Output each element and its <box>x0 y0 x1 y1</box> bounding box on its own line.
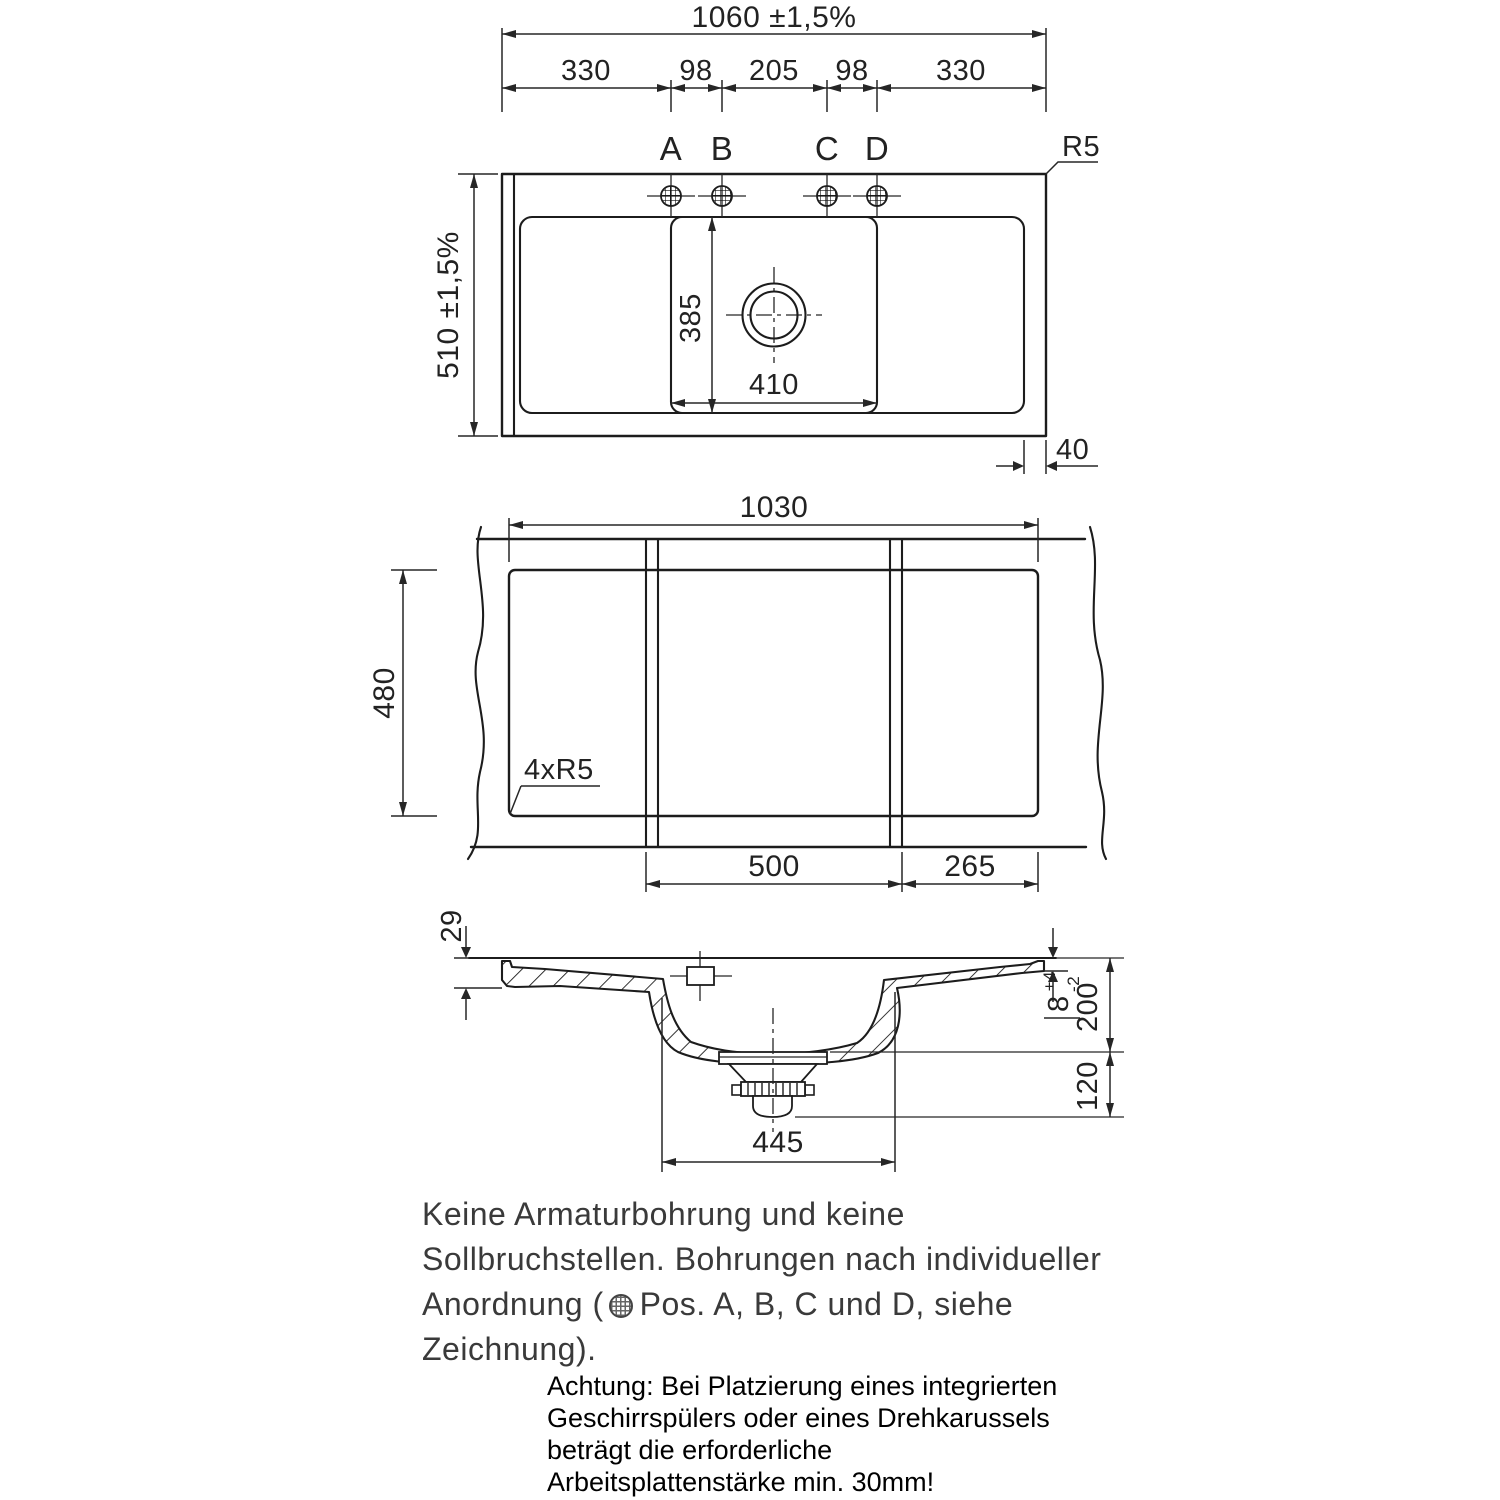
dim-section-bowl-depth: 200 <box>1072 982 1104 1032</box>
hole-label-b: B <box>711 130 734 167</box>
note-text: Arbeitsplattenstärke min. 30mm! <box>547 1467 934 1497</box>
note-line: Anordnung (Pos. A, B, C und D, siehe <box>422 1282 1101 1327</box>
note-text: Zeichnung). <box>422 1331 596 1367</box>
note-line: Sollbruchstellen. Bohrungen nach individ… <box>422 1237 1101 1282</box>
dim-cutout-width: 1030 <box>740 491 809 524</box>
dim-seg-330-left: 330 <box>561 55 611 87</box>
note-text: Sollbruchstellen. Bohrungen nach individ… <box>422 1241 1101 1277</box>
note-text: Geschirrspülers oder eines Drehkarussels <box>547 1403 1050 1433</box>
dim-seg-right: 265 <box>944 850 996 883</box>
note-line: beträgt die erforderliche <box>547 1434 1057 1466</box>
note-text: beträgt die erforderliche <box>547 1435 832 1465</box>
dim-cutout-depth: 480 <box>368 667 401 719</box>
dim-seg-bowl: 500 <box>748 850 800 883</box>
dim-seg-205: 205 <box>749 55 799 87</box>
label-cutout-radius: 4xR5 <box>524 754 594 786</box>
dim-overall-width: 1060 ±1,5% <box>692 1 857 34</box>
drilling-note: Keine Armaturbohrung und keine Sollbruch… <box>422 1192 1101 1372</box>
note-line: Achtung: Bei Platzierung eines integrier… <box>547 1370 1057 1402</box>
note-text: Keine Armaturbohrung und keine <box>422 1196 905 1232</box>
sink-technical-drawing: 1060 ±1,5% 330 98 205 98 330 A B C D <box>0 0 1500 1500</box>
dim-bowl-outer-width: 445 <box>752 1126 804 1159</box>
dim-bowl-depth: 385 <box>675 293 707 343</box>
dim-rim-right: 40 <box>1056 434 1089 466</box>
dim-edge-thickness: 8 <box>1043 995 1075 1012</box>
dim-seg-330-right: 330 <box>936 55 986 87</box>
dim-bowl-width: 410 <box>749 369 799 401</box>
note-text: Achtung: Bei Platzierung eines integrier… <box>547 1371 1057 1401</box>
tap-hole-symbol-icon <box>609 1294 633 1318</box>
warning-note: Achtung: Bei Platzierung eines integrier… <box>547 1370 1057 1498</box>
note-text: Pos. A, B, C und D, siehe <box>640 1286 1014 1322</box>
note-line: Zeichnung). <box>422 1327 1101 1372</box>
hole-label-d: D <box>865 130 889 167</box>
label-corner-radius: R5 <box>1062 131 1100 163</box>
note-line: Keine Armaturbohrung und keine <box>422 1192 1101 1237</box>
dim-seg-98-ab: 98 <box>679 55 712 87</box>
dim-seg-98-cd: 98 <box>835 55 868 87</box>
dim-rim-height: 29 <box>436 909 468 942</box>
dim-drain-height: 120 <box>1072 1061 1104 1111</box>
note-text: Anordnung ( <box>422 1286 604 1322</box>
hole-label-c: C <box>815 130 839 167</box>
dim-overall-depth: 510 ±1,5% <box>432 231 465 379</box>
edge-tol-plus: +4 <box>1040 971 1059 991</box>
note-line: Arbeitsplattenstärke min. 30mm! <box>547 1466 1057 1498</box>
note-line: Geschirrspülers oder eines Drehkarussels <box>547 1402 1057 1434</box>
hole-label-a: A <box>660 130 683 167</box>
